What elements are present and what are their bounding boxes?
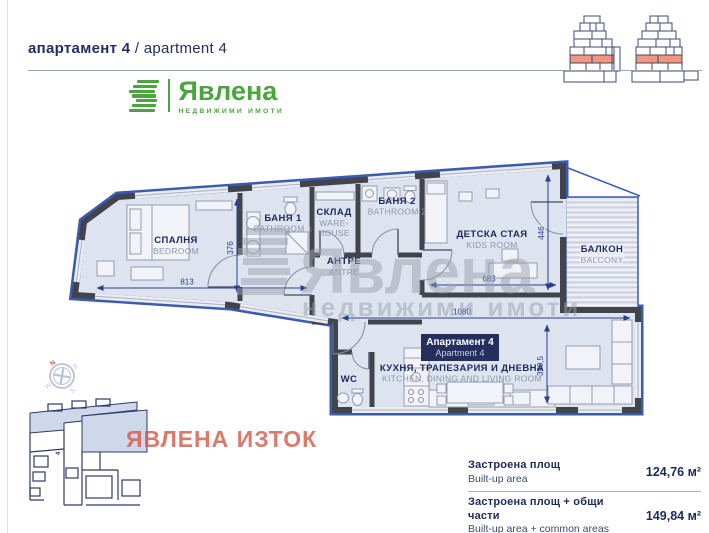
- area-row-built-up: Застроена площ Built-up area 124,76 м²: [468, 455, 701, 492]
- logo-divider: [168, 79, 170, 112]
- room-label-bedroom-bg: СПАЛНЯ: [154, 235, 197, 246]
- room-label-balcony-en: BALCONY: [581, 255, 624, 265]
- dim-kidsroom-height: 446: [537, 226, 546, 240]
- area-value: 124,76 м²: [638, 465, 701, 479]
- room-label-bathroom2-en: BATHROOM 2: [368, 207, 427, 217]
- yavlena-logo: Явлена НЕДВИЖИМИ ИМОТИ: [129, 79, 284, 115]
- area-value: 149,84 м²: [638, 509, 701, 523]
- key-plan-unit-number: 4: [56, 451, 62, 455]
- area-summary-table: Застроена площ Built-up area 124,76 м² З…: [468, 455, 701, 533]
- room-label-wc: WC: [341, 374, 358, 385]
- room-label-balcony-bg: БАЛКОН: [581, 244, 624, 255]
- logo-tagline: НЕДВИЖИМИ ИМОТИ: [179, 108, 284, 115]
- room-label-kitchen-en: KITCHEN, DINING AND LIVING ROOM: [382, 374, 542, 384]
- watermark-tagline: недвижими имоти: [302, 292, 581, 322]
- area-label-bg: Застроена площ + общи части: [468, 496, 638, 524]
- room-label-storage-en1: WARE-: [319, 218, 349, 228]
- compass-east: E: [72, 362, 80, 371]
- balcony-structure: [563, 166, 640, 309]
- compass-south: S: [69, 387, 77, 396]
- apartment-number-box: Апартамент 4 Apartment 4: [421, 334, 499, 361]
- header-divider: [28, 70, 702, 71]
- apartment-box-line2: Apartment 4: [435, 348, 484, 358]
- page-title-en: / apartment 4: [135, 40, 227, 57]
- room-label-kitchen-bg: КУХНЯ, ТРАПЕЗАРИЯ И ДНЕВНА: [380, 363, 544, 374]
- brochure-page: 813 376 683 446 1080 399,5 СПАЛНЯ BEDROO…: [0, 0, 709, 533]
- room-label-storage-bg: СКЛАД: [316, 207, 351, 218]
- logo-name: Явлена: [179, 79, 284, 105]
- building-icon-right: [632, 16, 698, 82]
- dim-bedroom-height: 376: [226, 241, 235, 255]
- building-elevation-icons: [564, 16, 698, 82]
- area-label-en: Built-up area: [468, 473, 560, 486]
- room-label-bathroom2-bg: БАНЯ 2: [378, 196, 415, 207]
- page-title: апартамент 4 / apartment 4: [28, 40, 227, 57]
- compass-icon: N E S W: [35, 349, 91, 405]
- room-label-bathroom1-bg: БАНЯ 1: [264, 213, 302, 224]
- area-label-bg: Застроена площ: [468, 459, 560, 473]
- room-label-bedroom-en: BEDROOM: [153, 246, 199, 256]
- dim-bedroom-width: 813: [180, 278, 194, 287]
- building-icon-left: [564, 16, 620, 82]
- apartment-box-line1: Апартамент 4: [426, 337, 494, 348]
- yavlena-logo-icon: [129, 79, 159, 113]
- highlighted-floor: [636, 55, 682, 63]
- graphics-layer: 813 376 683 446 1080 399,5 СПАЛНЯ BEDROO…: [0, 0, 709, 533]
- site-watermark-label: ЯВЛЕНА ИЗТОК: [126, 426, 317, 453]
- page-title-bg: апартамент 4: [28, 40, 130, 57]
- watermark-logo-icon: [237, 228, 290, 295]
- area-label-en: Built-up area + common areas: [468, 523, 638, 533]
- area-row-common: Застроена площ + общи части Built-up are…: [468, 492, 701, 533]
